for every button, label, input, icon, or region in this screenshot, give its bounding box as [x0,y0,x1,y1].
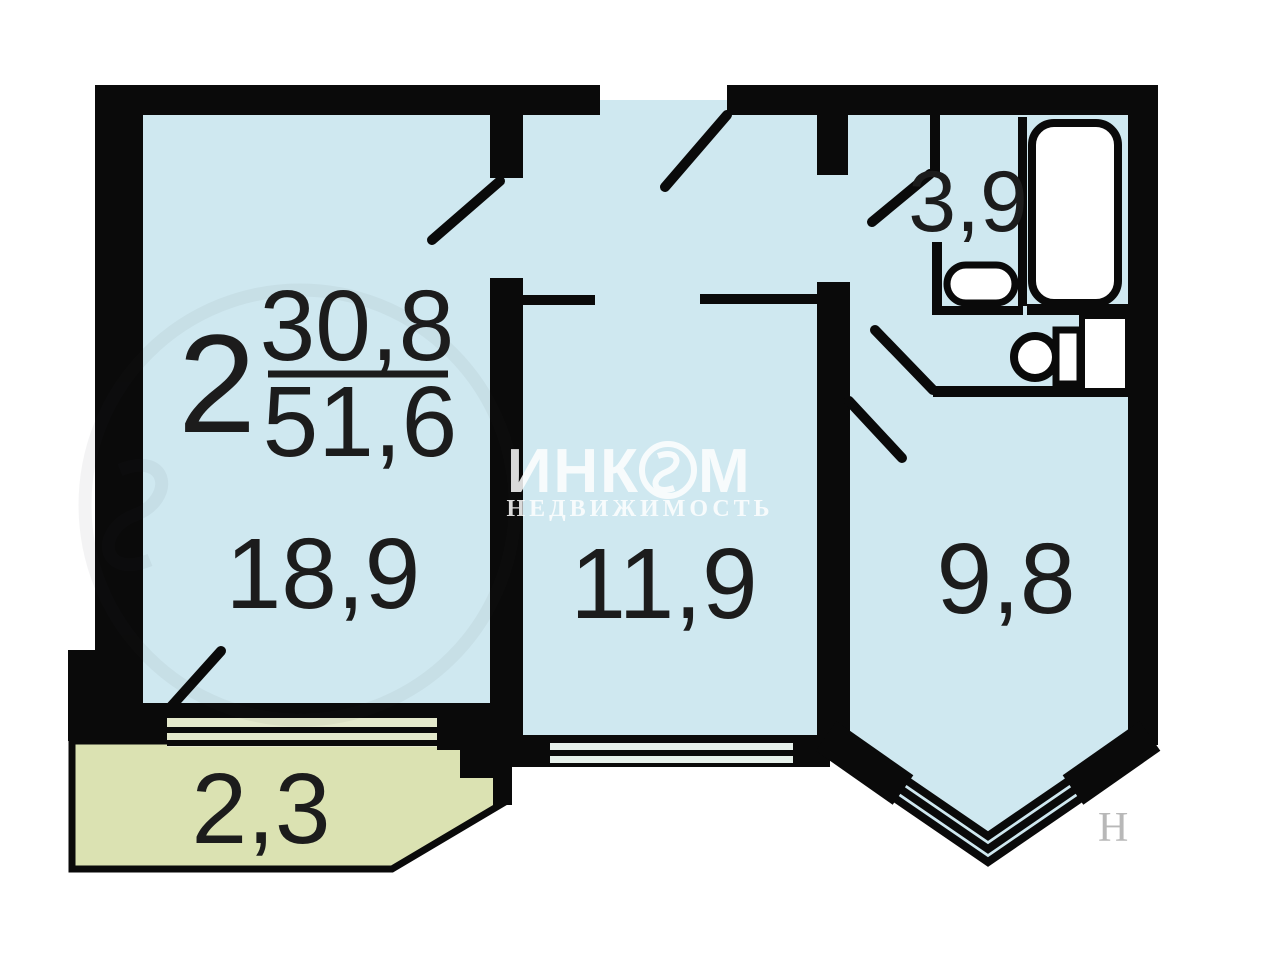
inner-room-window-glass-line [550,756,793,763]
inner-room-window-left-stub [493,767,512,805]
toilet-bowl-icon [1014,336,1056,378]
watermark-subtitle: НЕДВИЖИМОСТЬ [506,496,773,522]
hall-and-inner-room-floor [510,100,830,740]
kitchen-area-label: 9,8 [936,523,1075,635]
hall-partition-left [523,295,595,305]
floor-plan-page: 2 30,8 51,6 18,9 11,9 9,8 3,9 2,3 ИНК М … [0,0,1280,962]
bathtub-icon [1032,123,1118,303]
total-area-label: 51,6 [263,366,458,478]
toilet-seat-icon [1056,330,1080,384]
floor-plan: 2 30,8 51,6 18,9 11,9 9,8 3,9 2,3 ИНК М … [0,0,1280,962]
top-wall-left [95,85,600,115]
corridor-door-jamb [817,115,848,175]
bathroom-sink-wall [932,306,1023,315]
inner-room-window-glass-line [550,743,793,750]
rooms-count-label: 2 [178,305,256,462]
bathroom-wall-lower [932,242,942,315]
toilet-tank-icon [1082,316,1128,391]
inner-room-area-label: 11,9 [570,528,757,640]
living-room-area-label: 18,9 [226,518,421,630]
sink-icon [947,265,1015,303]
bathroom-area-label: 3,9 [908,154,1028,250]
living-room-door-jamb [490,115,523,178]
right-outer-wall [1128,85,1158,745]
watermark-corner-fragment: Н [1098,805,1128,851]
inner-room-window [493,735,830,805]
hall-partition-right [700,294,817,304]
top-wall-right [727,85,1157,115]
kitchen-left-wall [817,282,850,750]
balcony-area-label: 2,3 [191,753,330,865]
left-wall-pier [68,650,143,741]
